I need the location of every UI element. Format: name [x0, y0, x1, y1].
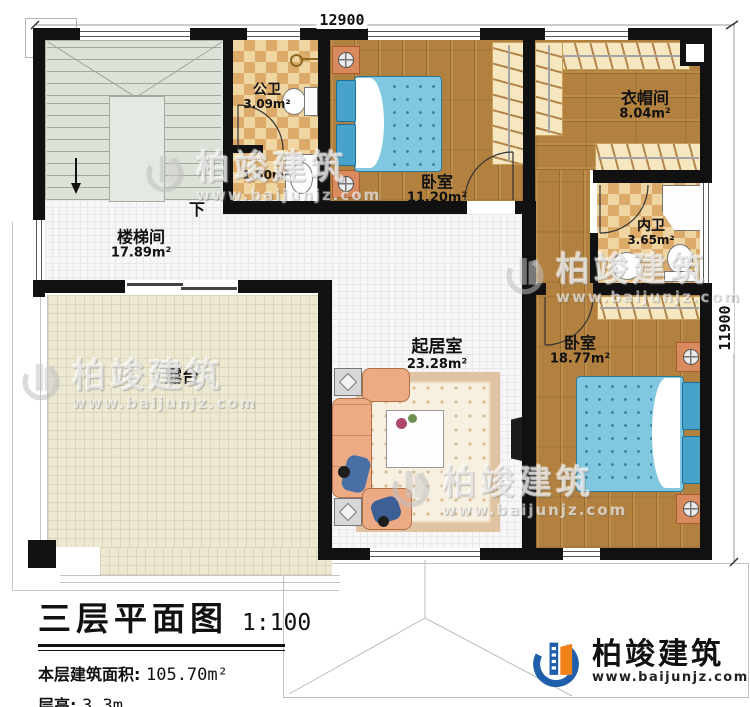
- room-label-public-bath: 公卫3.09m²: [243, 82, 290, 112]
- bed-pillow: [336, 80, 356, 122]
- bedroom-closet: [597, 296, 702, 320]
- room-label-bedroom-2: 卧室18.77m²: [550, 334, 610, 367]
- window: [247, 28, 300, 40]
- wall: [33, 28, 45, 220]
- window: [368, 28, 480, 40]
- nightstand: [332, 170, 360, 198]
- end-table: [334, 368, 362, 396]
- dimension-top: 12900: [316, 11, 367, 29]
- bed-pillow: [336, 124, 356, 166]
- armchair: [362, 368, 410, 402]
- toilet-tank: [304, 87, 318, 116]
- stairs-right-flight: [163, 96, 221, 200]
- brand-logo-icon: [528, 634, 584, 690]
- wall: [318, 40, 330, 202]
- wall: [590, 233, 598, 283]
- washbasin: [612, 252, 642, 280]
- wardrobe: [492, 42, 525, 165]
- room-label-terrace: 露台: [165, 368, 199, 388]
- plan-scale: 1:100: [242, 610, 311, 636]
- bed-pillow: [682, 436, 702, 484]
- stairs-left-flight: [47, 96, 109, 200]
- room-label-living-room: 起居室23.28m²: [407, 338, 467, 372]
- wall-lamp-stem: [301, 58, 318, 60]
- person-head: [338, 466, 350, 478]
- wall: [318, 548, 370, 560]
- window: [700, 183, 712, 283]
- washbasin: [290, 162, 313, 194]
- wall: [318, 293, 332, 548]
- wall: [700, 283, 712, 560]
- terrace-edge-line: [60, 575, 340, 576]
- flower-decor: [396, 418, 407, 429]
- window: [370, 548, 480, 560]
- room-label-stairwell: 楼梯间17.89m²: [111, 228, 171, 261]
- wall: [480, 28, 545, 40]
- dimension-right: 11900: [716, 302, 734, 353]
- brand-url: www.baijunjz.com: [592, 670, 749, 685]
- wall: [523, 40, 535, 214]
- end-table: [334, 498, 362, 526]
- wall: [593, 170, 700, 183]
- bed-sheet-fold: [652, 378, 680, 488]
- plan-title: 三层平面图: [38, 592, 228, 640]
- stairs-landing: [109, 96, 165, 202]
- terrace-pillar: [28, 540, 56, 568]
- room-label-bedroom-1: 卧室11.20m²: [407, 173, 467, 206]
- cloakroom-closet: [535, 42, 563, 136]
- floor-area-line: 本层建筑面积: 105.70m²: [38, 661, 311, 685]
- bed-sheet-fold: [356, 78, 384, 168]
- person-head: [378, 516, 389, 527]
- wall-lamp-icon: [290, 54, 303, 67]
- bed-quilt-pattern: [388, 80, 438, 166]
- wall: [300, 28, 368, 40]
- floor-plan-canvas: 楼梯间17.89m² 公卫3.09m² 1.50m² 卧室11.20m² 衣帽间…: [0, 0, 750, 707]
- wall: [190, 28, 247, 40]
- flower-decor: [408, 414, 417, 423]
- bed-pillow: [682, 382, 702, 430]
- stairs-down-label: 下: [189, 201, 205, 219]
- room-label-cloakroom: 衣帽间8.04m²: [619, 89, 670, 122]
- terrace-railing-line: [40, 295, 41, 557]
- wall: [593, 283, 700, 295]
- cloakroom-closet: [558, 42, 690, 70]
- sliding-door-leaf: [127, 283, 183, 286]
- wall: [223, 145, 263, 153]
- wall: [536, 283, 546, 295]
- bed-quilt-pattern: [580, 380, 652, 486]
- window: [33, 220, 45, 280]
- wall: [238, 280, 332, 293]
- brand-logo: 柏竣建筑 www.baijunjz.com: [528, 634, 749, 690]
- floor-height-line: 层高: 3.3m: [38, 692, 311, 707]
- flue: [686, 44, 704, 62]
- tv: [511, 417, 522, 461]
- window: [80, 28, 190, 40]
- sliding-door-leaf: [181, 287, 237, 290]
- toilet: [667, 244, 693, 274]
- nightstand: [332, 46, 360, 74]
- title-underline: [38, 644, 285, 647]
- wall: [522, 214, 536, 548]
- window: [545, 28, 628, 40]
- cloakroom-closet: [595, 143, 702, 172]
- floor-terrace: [48, 295, 332, 547]
- terrace-edge-line: [60, 582, 340, 583]
- title-underline-thin: [38, 650, 285, 651]
- room-label-private-bath: 内卫3.65m²: [627, 218, 674, 248]
- floor-passage: [535, 170, 590, 283]
- brand-name: 柏竣建筑: [592, 639, 749, 671]
- title-block: 三层平面图1:100 本层建筑面积: 105.70m² 层高: 3.3m: [38, 592, 311, 707]
- wall: [600, 548, 712, 560]
- wall: [223, 40, 233, 202]
- wall: [480, 548, 563, 560]
- wall: [38, 280, 125, 293]
- toilet-tank: [664, 271, 696, 282]
- room-label-washroom: 1.50m²: [242, 169, 289, 183]
- floor-terrace-lower: [100, 547, 332, 575]
- stairs-upper-flight: [47, 42, 221, 96]
- window: [563, 548, 600, 560]
